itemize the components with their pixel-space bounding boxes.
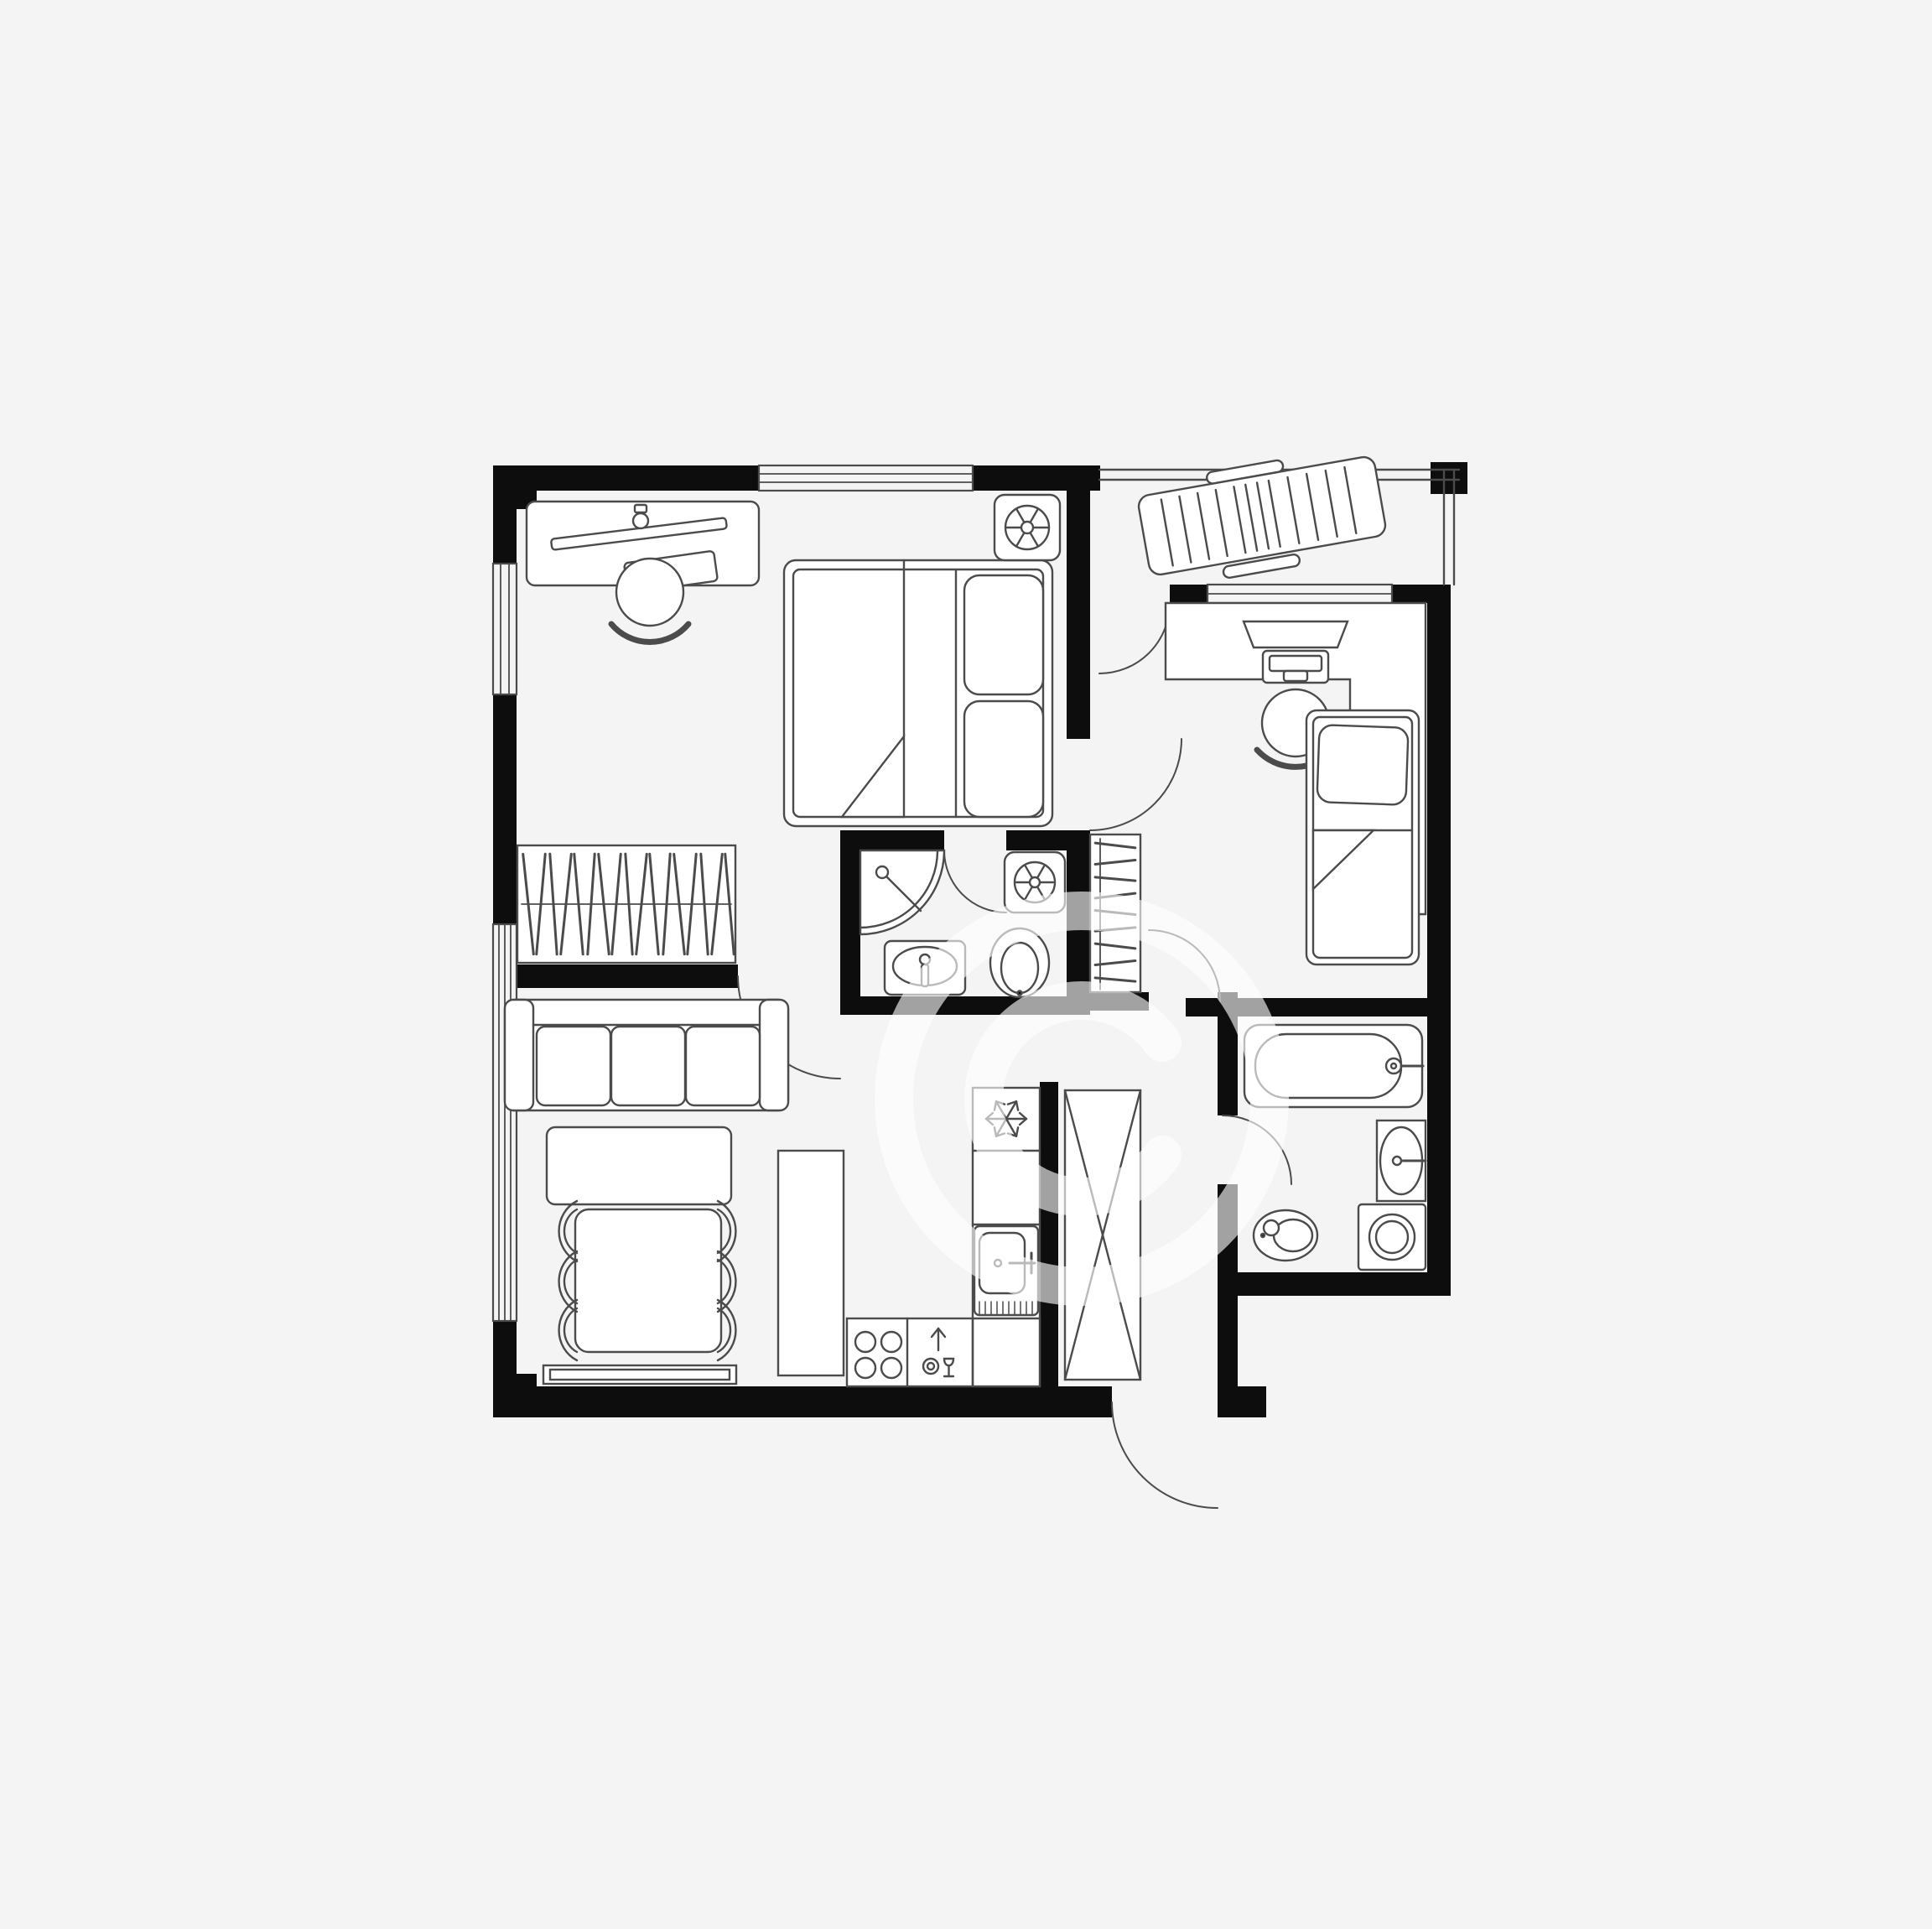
sofa-arm-left xyxy=(505,1000,533,1110)
toilet1-dot xyxy=(1018,991,1022,996)
sun-lounger xyxy=(1135,444,1389,591)
balcony xyxy=(1135,444,1389,591)
fan-icon-1 xyxy=(995,495,1060,560)
door-balcony xyxy=(1099,603,1170,673)
wall-bottom-a xyxy=(493,1386,1112,1417)
monitor-screen xyxy=(1244,621,1348,647)
wall-top-a xyxy=(493,465,759,491)
desk-chair-seat xyxy=(616,559,683,626)
bedroom2 xyxy=(1166,603,1426,964)
wall-master-right-a xyxy=(1067,465,1090,739)
monitor-base xyxy=(1284,671,1307,681)
toilet2-dot xyxy=(1261,1234,1265,1237)
monitor-panel xyxy=(1270,656,1322,671)
pillow-1 xyxy=(964,575,1043,694)
single-bed-pillow-g xyxy=(1317,725,1408,805)
dining-table xyxy=(575,1209,721,1352)
desk-chair-back xyxy=(611,624,688,642)
wall-bath1-top-b xyxy=(1006,830,1067,850)
wall-kitchen-east xyxy=(1040,1082,1058,1386)
sink2-knob xyxy=(1393,1157,1401,1165)
wall-bath2-bottom xyxy=(1238,1272,1451,1296)
fan2-hub xyxy=(1030,877,1040,887)
wall-bath1-top-a xyxy=(840,830,944,850)
living-dining xyxy=(505,1000,788,1384)
floor-plan-page xyxy=(0,0,1932,1929)
sofa-arm-right xyxy=(760,1000,788,1110)
wall-bath1-left xyxy=(840,830,860,1015)
wall-balcony-corner xyxy=(1431,462,1467,494)
sideboard-inner xyxy=(550,1370,730,1380)
sofa-cushion-3 xyxy=(686,1027,760,1105)
door-master-bedroom xyxy=(1090,739,1182,830)
door-entrance xyxy=(1112,1402,1218,1508)
window-top xyxy=(759,465,973,491)
sofa-cushion-1 xyxy=(537,1027,610,1105)
floor-plan xyxy=(0,0,1932,1929)
shower-drain xyxy=(876,866,888,878)
toilet2-flush xyxy=(1264,1220,1279,1235)
wall-left-b xyxy=(493,694,517,924)
window-left-upper xyxy=(493,564,517,694)
wall-divider-living xyxy=(493,964,738,988)
desk-knob-cap xyxy=(635,505,647,512)
wall-bedroom2-top-a xyxy=(1170,585,1207,603)
fan1-hub xyxy=(1021,522,1033,533)
master-bedroom xyxy=(517,495,1060,963)
wall-left-a xyxy=(493,465,517,564)
bathtub-tap xyxy=(1386,1058,1401,1074)
coffee-table xyxy=(547,1127,731,1204)
sofa-cushion-2 xyxy=(611,1027,685,1105)
pillow-2 xyxy=(964,701,1043,817)
kitchen-island xyxy=(778,1151,844,1375)
wall-right xyxy=(1427,585,1451,1296)
single-bed-pillow xyxy=(1317,725,1408,805)
wall-bedroom2-top-b xyxy=(1392,585,1427,603)
desk-knob xyxy=(633,513,648,528)
door-bathroom1 xyxy=(944,850,1006,913)
